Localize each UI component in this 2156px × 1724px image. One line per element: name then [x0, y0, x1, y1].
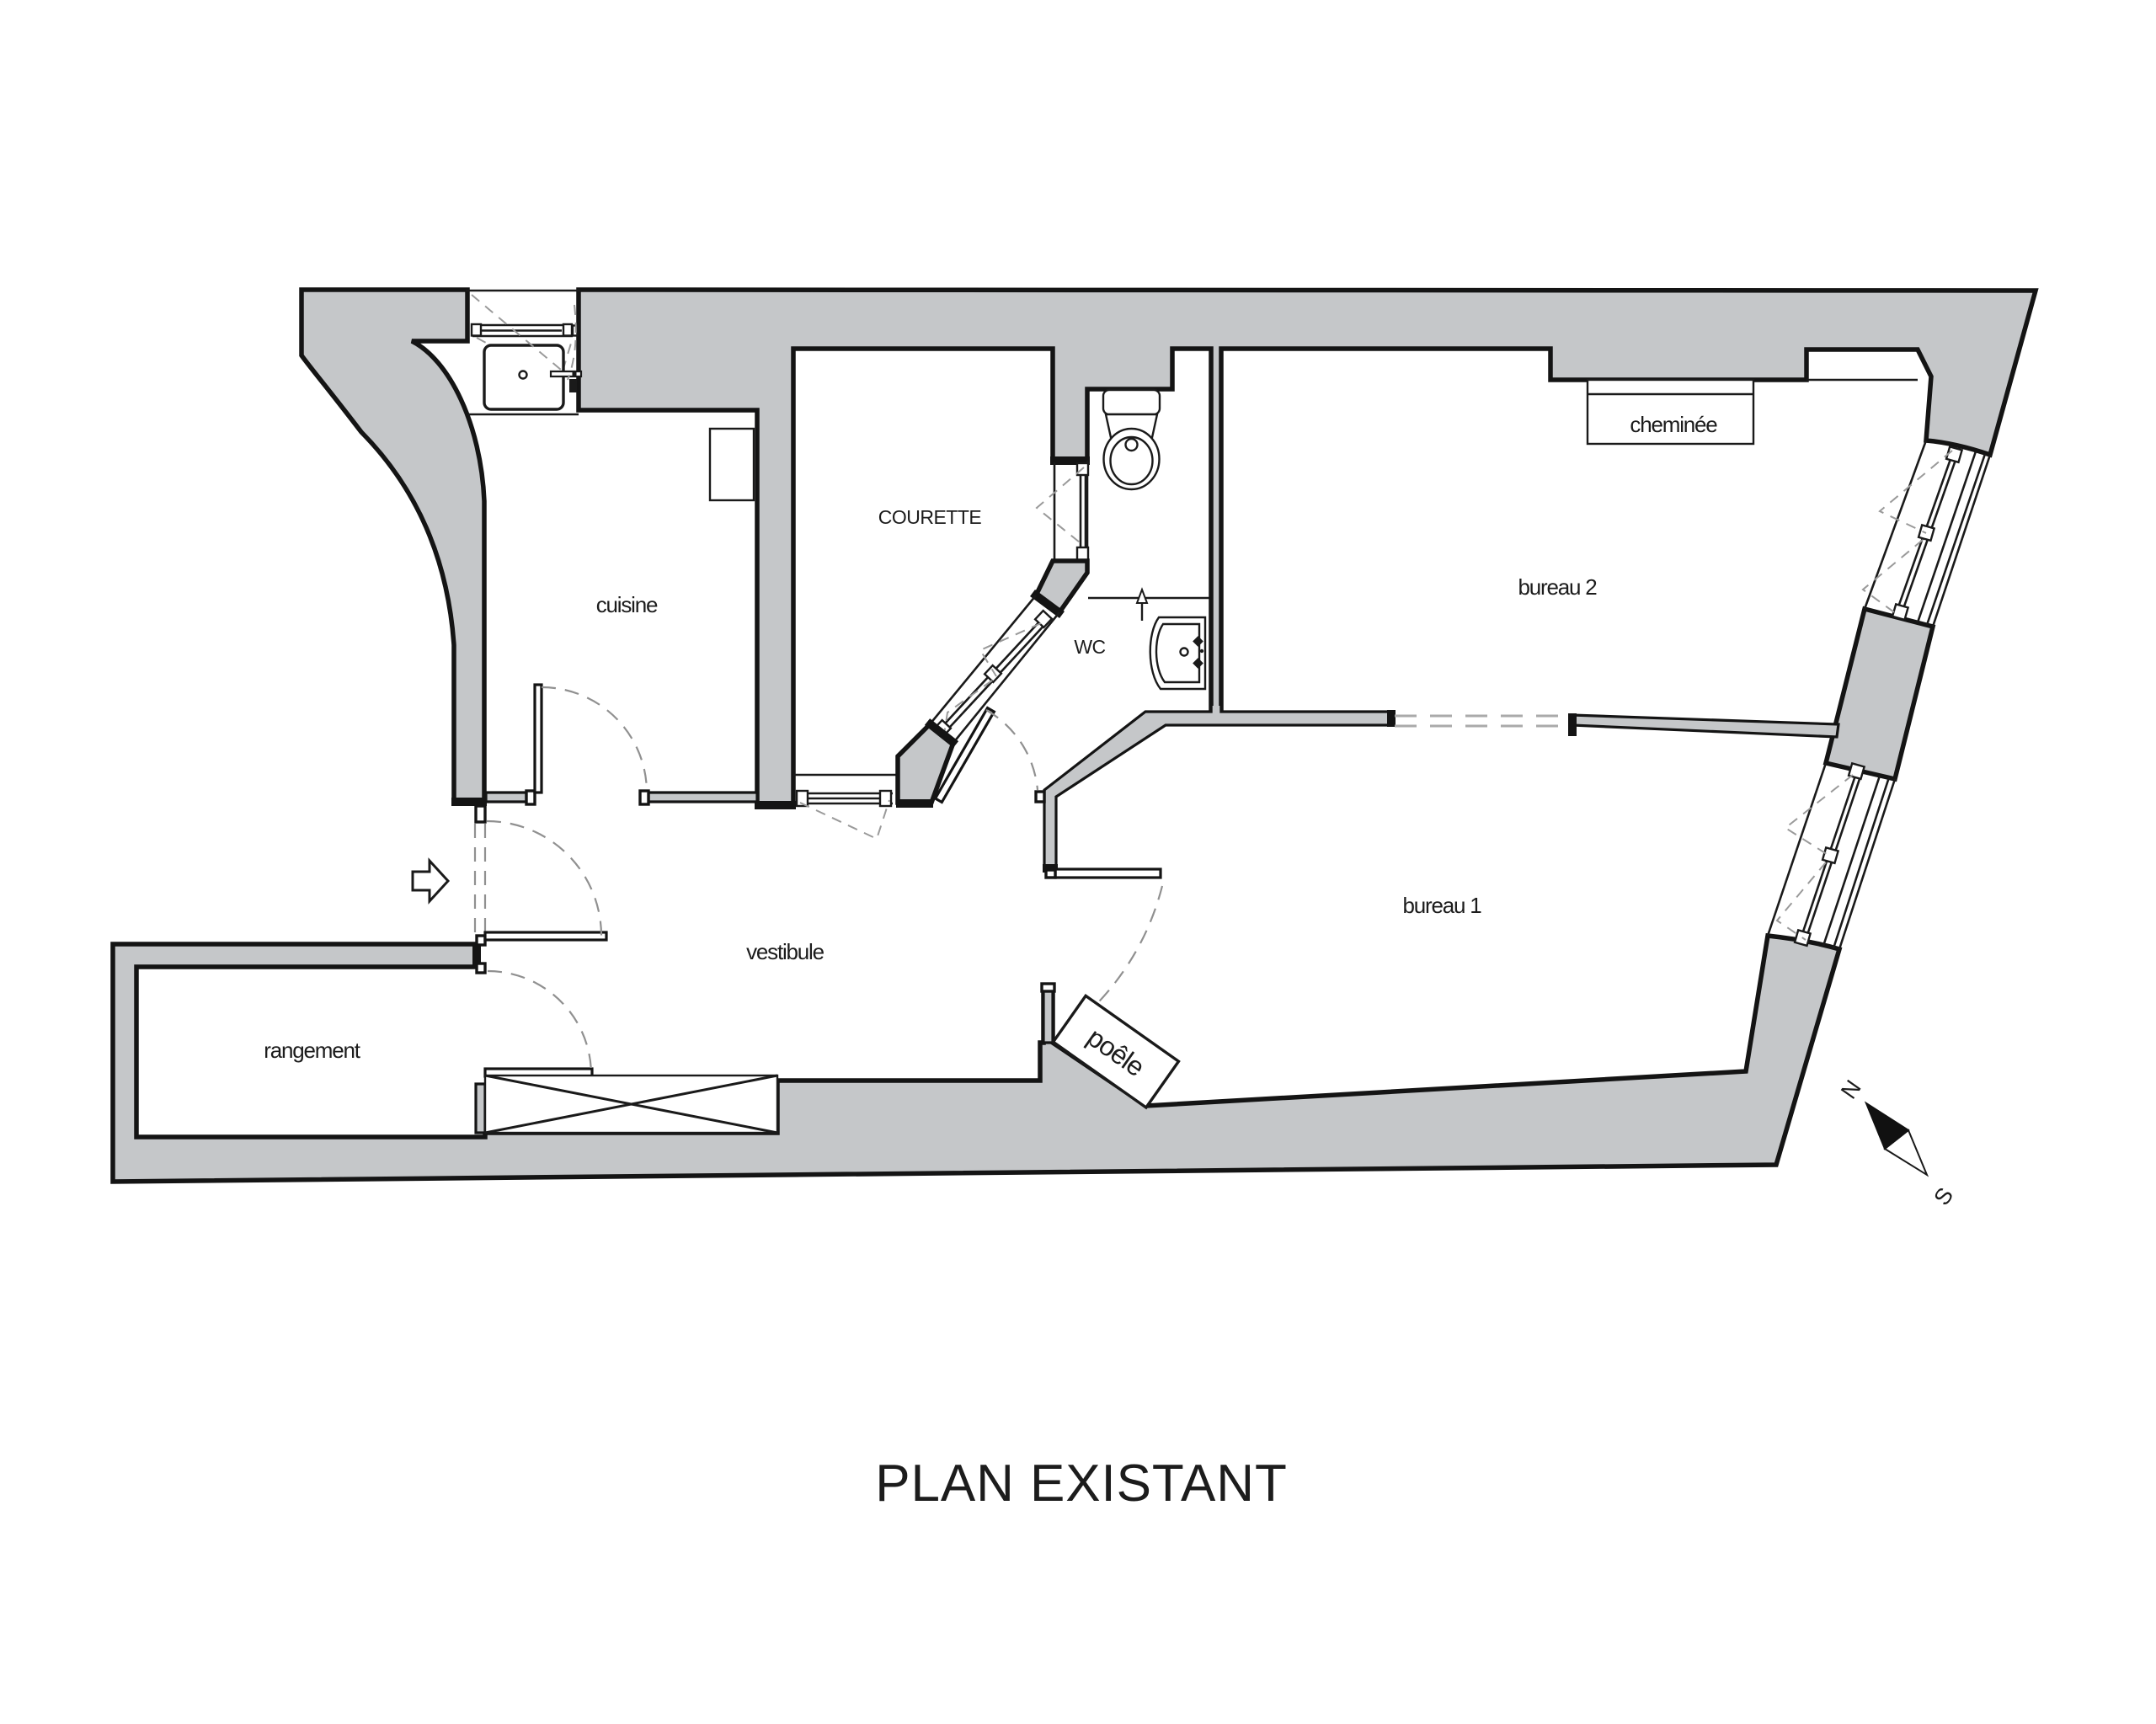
svg-text:cheminée: cheminée: [1630, 412, 1717, 437]
svg-text:WC: WC: [1074, 636, 1105, 658]
svg-text:cuisine: cuisine: [596, 592, 658, 617]
svg-text:COURETTE: COURETTE: [878, 506, 982, 528]
svg-text:bureau 2: bureau 2: [1518, 574, 1597, 600]
svg-text:vestibule: vestibule: [746, 939, 825, 964]
svg-text:rangement: rangement: [264, 1038, 360, 1063]
svg-text:PLAN EXISTANT: PLAN EXISTANT: [875, 1454, 1287, 1513]
svg-text:bureau 1: bureau 1: [1402, 893, 1481, 918]
